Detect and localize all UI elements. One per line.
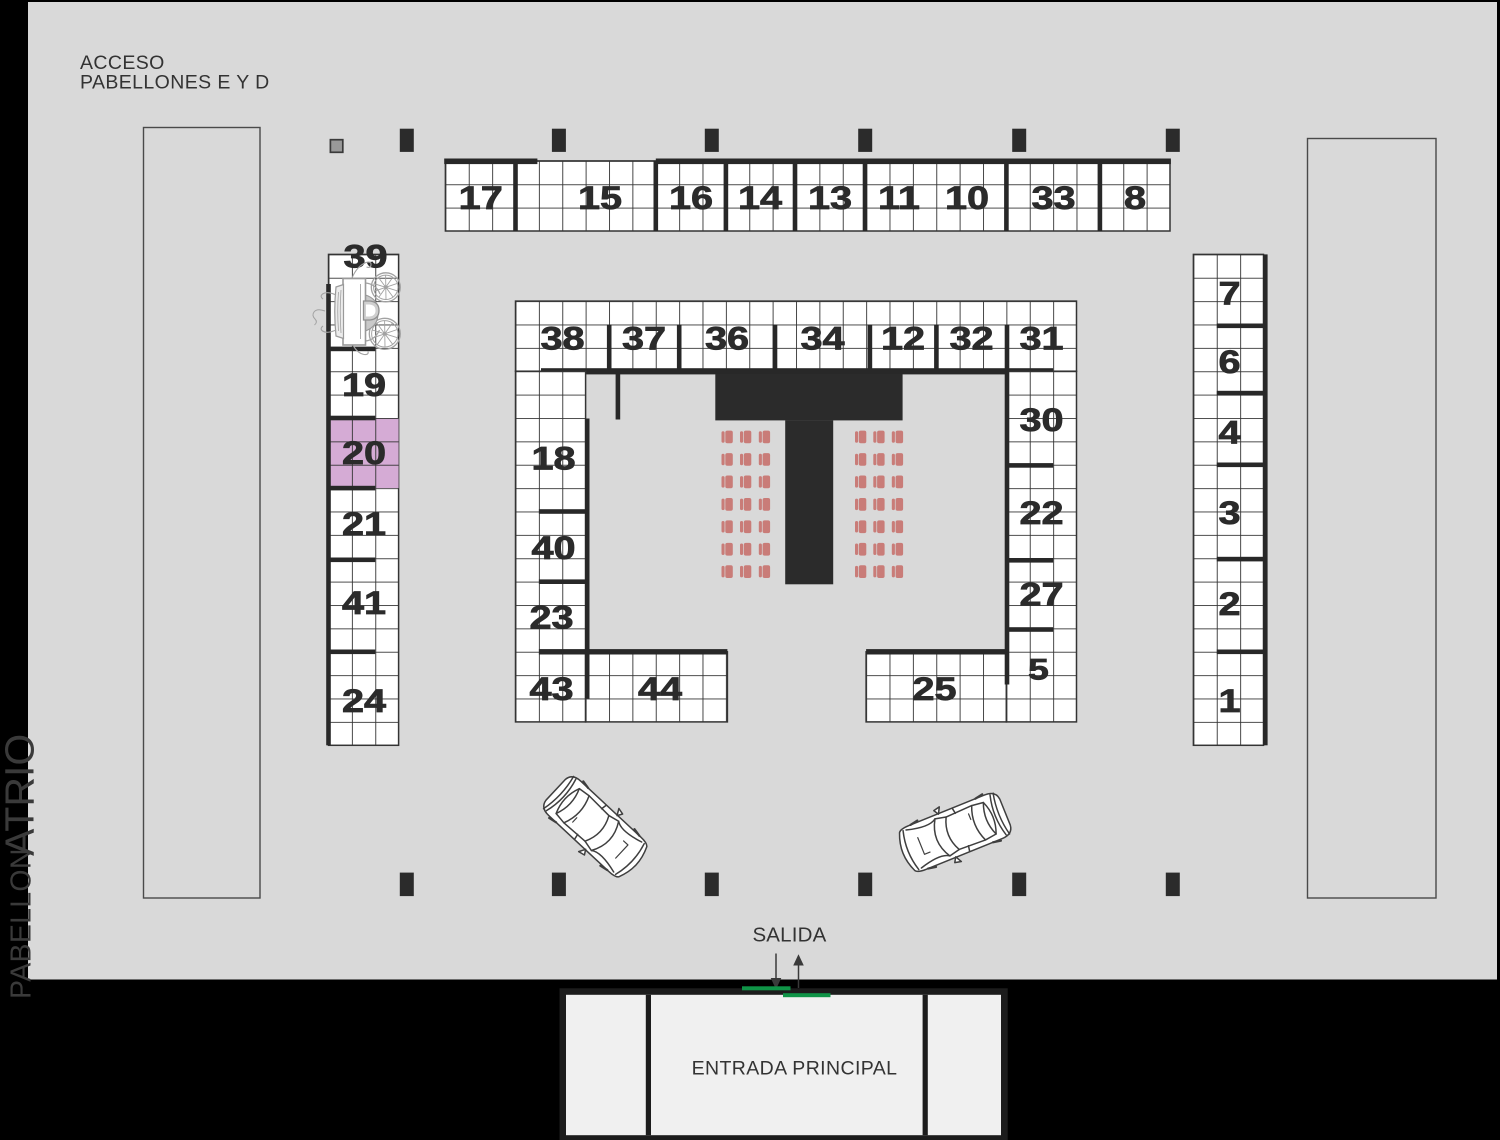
svg-text:25: 25: [912, 671, 956, 707]
svg-text:1: 1: [1218, 683, 1240, 719]
svg-text:13: 13: [808, 180, 852, 216]
svg-text:12: 12: [881, 320, 925, 356]
svg-text:16: 16: [669, 180, 713, 216]
svg-text:38: 38: [540, 320, 584, 356]
svg-text:SALIDA: SALIDA: [752, 924, 826, 947]
svg-text:18: 18: [531, 440, 575, 476]
svg-text:41: 41: [342, 585, 386, 621]
svg-text:5: 5: [1028, 653, 1049, 687]
svg-text:17: 17: [459, 180, 503, 216]
svg-text:ATRIO: ATRIO: [0, 734, 43, 856]
svg-text:10: 10: [945, 180, 989, 216]
svg-text:2: 2: [1218, 586, 1240, 622]
svg-text:20: 20: [342, 435, 386, 471]
svg-text:15: 15: [578, 180, 622, 216]
svg-text:37: 37: [622, 320, 666, 356]
svg-text:36: 36: [705, 320, 749, 356]
svg-text:30: 30: [1019, 402, 1063, 438]
svg-text:44: 44: [638, 671, 682, 707]
svg-text:43: 43: [529, 671, 573, 707]
svg-text:40: 40: [531, 530, 575, 566]
svg-text:3: 3: [1218, 495, 1240, 531]
svg-text:6: 6: [1218, 344, 1240, 380]
svg-text:24: 24: [342, 683, 386, 719]
svg-text:4: 4: [1218, 414, 1240, 450]
svg-text:19: 19: [342, 367, 386, 403]
svg-text:27: 27: [1019, 576, 1063, 612]
svg-text:7: 7: [1218, 275, 1240, 311]
svg-text:PABELLON: PABELLON: [6, 848, 38, 999]
svg-text:ENTRADA PRINCIPAL: ENTRADA PRINCIPAL: [692, 1058, 898, 1080]
svg-text:32: 32: [949, 320, 993, 356]
svg-text:39: 39: [343, 238, 387, 274]
svg-text:11: 11: [878, 180, 920, 216]
svg-text:8: 8: [1124, 180, 1146, 216]
svg-text:33: 33: [1031, 180, 1075, 216]
svg-text:14: 14: [738, 180, 782, 216]
svg-text:21: 21: [342, 506, 386, 542]
svg-text:23: 23: [529, 599, 573, 635]
svg-text:34: 34: [800, 320, 844, 356]
svg-text:31: 31: [1019, 320, 1063, 356]
svg-text:22: 22: [1019, 495, 1063, 531]
svg-text:PABELLONES E Y D: PABELLONES E Y D: [80, 72, 270, 94]
